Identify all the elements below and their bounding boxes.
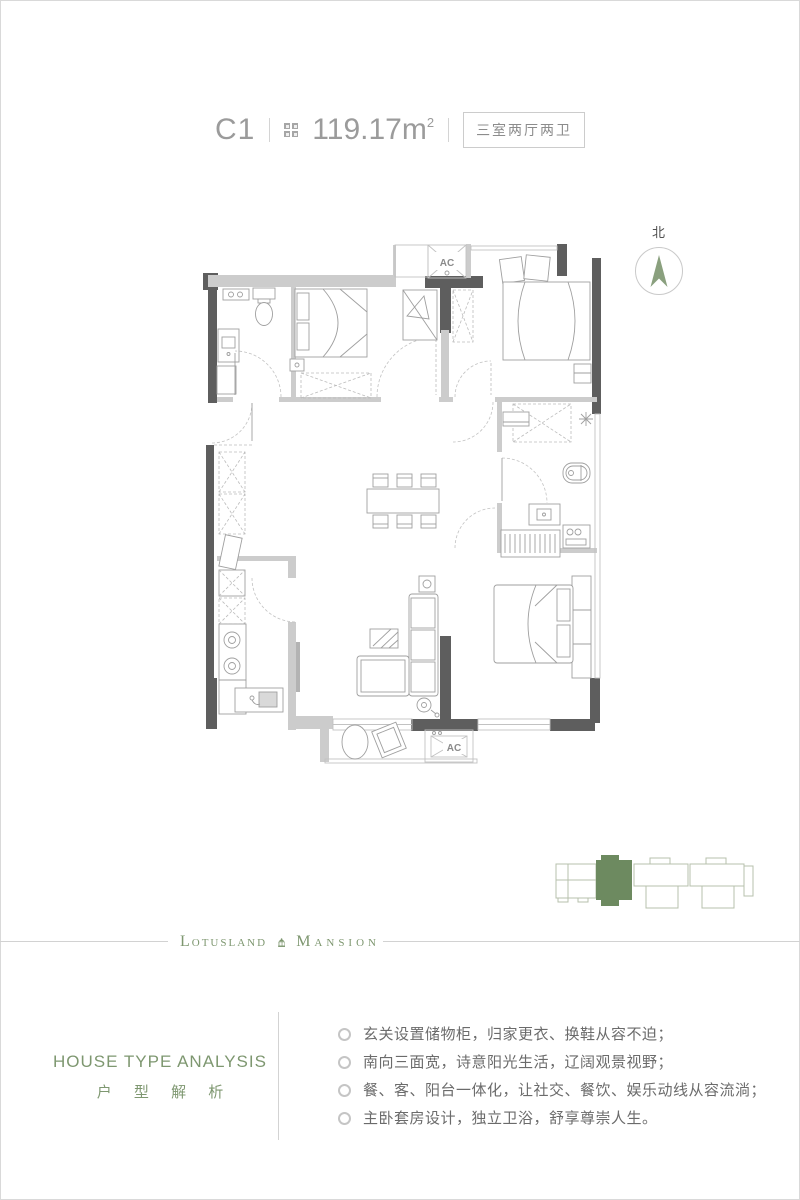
brand-word-left: Lotusland xyxy=(180,933,267,951)
kitchen xyxy=(219,570,296,714)
area-grid-icon xyxy=(284,123,298,137)
living-room xyxy=(296,576,439,717)
bullet-text: 玄关设置储物柜，归家更衣、换鞋从容不迫； xyxy=(363,1026,673,1043)
layout-label-box: 三室两厅两卫 xyxy=(463,112,585,148)
master-bedroom xyxy=(494,576,591,678)
analysis-title-cn: 户 型 解 析 xyxy=(40,1081,280,1102)
header-divider xyxy=(269,118,270,142)
analysis-bullet-item: 主卧套房设计，独立卫浴，舒享尊崇人生。 xyxy=(338,1110,778,1127)
master-bath xyxy=(453,402,593,557)
ac-unit-bottom: AC xyxy=(425,730,473,762)
analysis-title-en: HOUSE TYPE ANALYSIS xyxy=(40,1052,280,1072)
closet-area xyxy=(403,290,473,342)
analysis-bullet-item: 玄关设置储物柜，归家更衣、换鞋从容不迫； xyxy=(338,1026,778,1043)
unit-label: C1 xyxy=(215,113,255,147)
compass-arrow-icon xyxy=(636,248,682,294)
ac-unit-top: AC xyxy=(428,245,466,278)
brand-emblem-icon xyxy=(277,928,286,956)
building-outline xyxy=(556,858,753,908)
compass: 北 xyxy=(632,222,686,295)
bullet-ring-icon xyxy=(338,1056,351,1069)
bullet-text: 餐、客、阳台一体化，让社交、餐饮、娱乐动线从容流淌； xyxy=(363,1082,766,1099)
ac-label-bottom: AC xyxy=(447,743,461,754)
dining-set xyxy=(367,474,439,528)
bullet-text: 主卧套房设计，独立卫浴，舒享尊崇人生。 xyxy=(363,1110,658,1127)
balcony xyxy=(342,722,406,759)
analysis-title: HOUSE TYPE ANALYSIS 户 型 解 析 xyxy=(40,1052,280,1102)
entry-storage xyxy=(212,403,252,570)
analysis-bullet-list: 玄关设置储物柜，归家更衣、换鞋从容不迫； 南向三面宽，诗意阳光生活，辽阔观景视野… xyxy=(338,1026,778,1138)
logo-divider-right xyxy=(383,941,800,942)
compass-circle xyxy=(635,247,683,295)
ac-label-top: AC xyxy=(440,258,454,269)
analysis-divider xyxy=(278,1012,279,1140)
bullet-ring-icon xyxy=(338,1028,351,1041)
bullet-ring-icon xyxy=(338,1084,351,1097)
analysis-bullet-item: 南向三面宽，诗意阳光生活，辽阔观景视野； xyxy=(338,1054,778,1071)
bathroom-1 xyxy=(217,288,281,397)
brand-word-right: Mansion xyxy=(296,933,380,951)
compass-north-label: 北 xyxy=(632,222,686,241)
bullet-ring-icon xyxy=(338,1112,351,1125)
bullet-text: 南向三面宽，诗意阳光生活，辽阔观景视野； xyxy=(363,1054,673,1071)
logo-divider-left xyxy=(0,941,168,942)
brand-logo: Lotusland Mansion xyxy=(180,922,380,962)
plan-header: C1 119.17m2 三室两厅两卫 xyxy=(0,112,800,148)
analysis-bullet-item: 餐、客、阳台一体化，让社交、餐饮、娱乐动线从容流淌； xyxy=(338,1082,778,1099)
area-value: 119.17m2 xyxy=(312,113,434,147)
header-divider xyxy=(448,118,449,142)
floor-plan: AC AC xyxy=(195,226,620,778)
highlighted-unit xyxy=(596,855,632,906)
site-diagram xyxy=(548,850,758,914)
